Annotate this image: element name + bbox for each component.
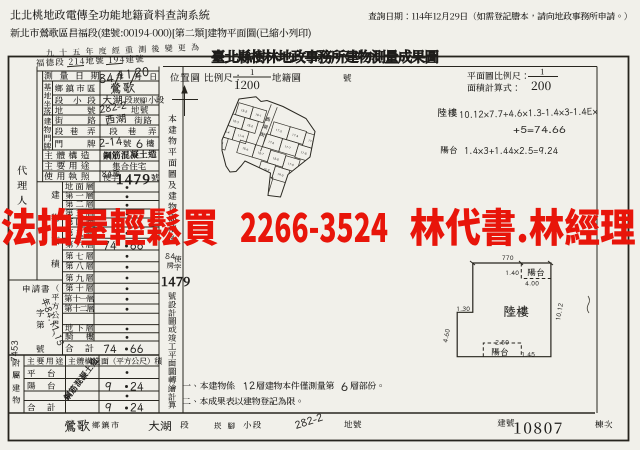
svg-text:陽: 陽 xyxy=(27,380,36,392)
svg-text:日: 日 xyxy=(149,72,157,83)
svg-text:代: 代 xyxy=(17,162,27,177)
svg-text:200: 200 xyxy=(531,77,551,94)
svg-text:算: 算 xyxy=(168,399,177,411)
svg-text:第: 第 xyxy=(36,319,45,331)
svg-text:4.00: 4.00 xyxy=(525,279,539,288)
svg-text:層: 層 xyxy=(87,302,95,314)
svg-text:號: 號 xyxy=(36,343,45,355)
svg-text:陽台: 陽台 xyxy=(491,346,509,358)
svg-text:10807: 10807 xyxy=(513,417,564,439)
svg-text:1479: 1479 xyxy=(161,272,191,290)
svg-text:物: 物 xyxy=(12,395,21,406)
svg-text:號: 號 xyxy=(343,72,352,84)
svg-text:第: 第 xyxy=(65,260,74,272)
svg-text:鄉鎮市: 鄉鎮市 xyxy=(92,420,121,431)
svg-text:1200: 1200 xyxy=(234,77,260,93)
svg-text:北北桃地政電傳全功能地籍資料查詢系統: 北北桃地政電傳全功能地籍資料查詢系統 xyxy=(10,7,210,23)
svg-text:平: 平 xyxy=(27,368,36,380)
svg-text:查詢日期：114年12月29日（如需登記謄本，請向地政事務所: 查詢日期：114年12月29日（如需登記謄本，請向地政事務所申請。） xyxy=(368,10,632,23)
svg-text:1.45: 1.45 xyxy=(521,350,535,359)
svg-text:1: 1 xyxy=(540,67,545,78)
svg-text:弄: 弄 xyxy=(148,126,157,138)
svg-text:大湖: 大湖 xyxy=(148,419,172,434)
svg-text:鶯歌: 鶯歌 xyxy=(63,417,91,435)
svg-text:新北市鶯歌區昌福段(建號:00194-000)[第二類]建物: 新北市鶯歌區昌福段(建號:00194-000)[第二類]建物平面圖(已縮小列印) xyxy=(9,25,311,40)
svg-text:下: 下 xyxy=(75,322,84,334)
svg-text:陸樓: 陸樓 xyxy=(437,106,458,119)
svg-text:崁腳: 崁腳 xyxy=(214,421,241,432)
svg-text:臺北縣樹林地政事務所建物測量成果圖: 臺北縣樹林地政事務所建物測量成果圖 xyxy=(211,46,440,67)
svg-text:申請書: 申請書 xyxy=(22,283,51,295)
svg-text:24: 24 xyxy=(130,401,144,416)
svg-text:計: 計 xyxy=(47,402,56,414)
svg-text:積: 積 xyxy=(50,257,60,270)
svg-text:巷: 巷 xyxy=(127,126,137,138)
svg-text:合: 合 xyxy=(27,402,36,414)
svg-text:地號: 地號 xyxy=(344,419,362,431)
svg-text:陽台: 陽台 xyxy=(527,267,545,279)
svg-text:1.30: 1.30 xyxy=(456,304,470,313)
svg-text:巷: 巷 xyxy=(69,126,79,138)
svg-text:一、本建物係: 一、本建物係 xyxy=(182,379,235,392)
svg-text:12: 12 xyxy=(242,378,257,393)
svg-text:號: 號 xyxy=(151,173,159,184)
svg-text:6: 6 xyxy=(341,380,348,395)
svg-text:段: 段 xyxy=(180,419,189,431)
svg-text:合: 合 xyxy=(65,342,74,355)
svg-text:棟次: 棟次 xyxy=(594,419,613,431)
svg-text:1479: 1479 xyxy=(116,168,151,188)
svg-text:屬: 屬 xyxy=(12,370,20,381)
svg-text:地籍圖: 地籍圖 xyxy=(271,70,302,84)
svg-text:測量日期: 測量日期 xyxy=(44,69,106,82)
svg-text:1.40: 1.40 xyxy=(505,268,519,277)
svg-text:台: 台 xyxy=(47,380,56,392)
svg-text:陸樓: 陸樓 xyxy=(503,303,529,320)
svg-text:段: 段 xyxy=(55,126,64,138)
svg-text:+5=74.66: +5=74.66 xyxy=(513,123,566,136)
svg-text:層部份。: 層部份。 xyxy=(350,379,385,392)
svg-text:台: 台 xyxy=(47,368,56,380)
svg-text:小: 小 xyxy=(73,95,82,107)
svg-text:林代書.林經理: 林代書.林經理 xyxy=(410,196,636,254)
svg-text:9: 9 xyxy=(105,380,112,395)
svg-text:小段: 小段 xyxy=(243,419,262,431)
svg-text:層: 層 xyxy=(86,260,94,272)
svg-text:弄: 弄 xyxy=(86,126,96,138)
svg-text:小段: 小段 xyxy=(148,94,165,106)
svg-text:2.50: 2.50 xyxy=(495,338,509,347)
svg-text:陽台: 陽台 xyxy=(440,144,458,156)
svg-text:主要用途: 主要用途 xyxy=(26,356,65,367)
svg-text:2266-3524: 2266-3524 xyxy=(240,196,388,254)
svg-text:面（平方公尺）積: 面（平方公尺）積 xyxy=(101,356,162,367)
svg-text:鄉鎮市區: 鄉鎮市區 xyxy=(55,83,98,95)
svg-text:二、本成果表以建物登記為限。: 二、本成果表以建物登記為限。 xyxy=(182,395,304,408)
svg-text:位置圖: 位置圖 xyxy=(169,70,201,84)
svg-text:理: 理 xyxy=(17,177,28,192)
svg-text:計: 計 xyxy=(85,342,94,355)
svg-text:法拍屋輕鬆買: 法拍屋輕鬆買 xyxy=(1,196,219,254)
svg-text:1.4×3+1.44×2.5=9.24: 1.4×3+1.44×2.5=9.24 xyxy=(464,144,558,157)
svg-text:24: 24 xyxy=(130,380,144,395)
svg-text:建: 建 xyxy=(11,383,21,394)
svg-text:9: 9 xyxy=(105,401,112,416)
svg-text:面積計算式：: 面積計算式： xyxy=(467,81,521,94)
svg-text:66: 66 xyxy=(130,342,144,357)
svg-text:770: 770 xyxy=(502,253,514,262)
svg-text:74: 74 xyxy=(103,342,117,357)
svg-text:八: 八 xyxy=(76,260,85,272)
svg-text:附: 附 xyxy=(12,358,21,369)
svg-text:層建物本件僅測量第: 層建物本件僅測量第 xyxy=(256,379,335,392)
